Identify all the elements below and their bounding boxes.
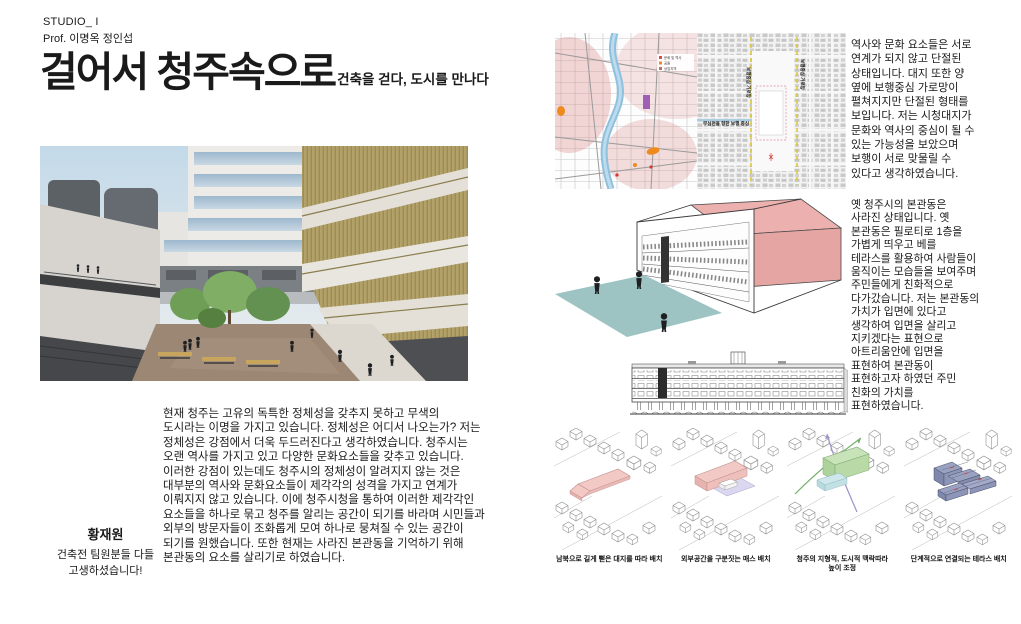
studio-label: STUDIO_ I	[43, 16, 99, 28]
page-title: 걸어서 청주속으로	[40, 50, 335, 95]
corridor-label-left: 보행중심 가로망	[745, 67, 752, 99]
diagram-1-caption: 남북으로 길게 뻗은 대지를 따라 배치	[556, 555, 662, 564]
diagram-3-image	[787, 428, 897, 553]
diagram-4-caption: 단계적으로 연결되는 테라스 배치	[911, 555, 1007, 564]
legend-item-1: 문화 및 역사	[664, 55, 682, 60]
site-analysis-text: 역사와 문화 요소들은 서로 연계가 되지 않고 단절된 상태입니다. 대지 또…	[851, 38, 1014, 181]
diagram-4-image	[904, 428, 1014, 553]
page-subtitle: 건축을 걷다, 도시를 만나다	[337, 68, 489, 95]
author-name: 황재원	[28, 524, 183, 543]
figure-ground-map: 보행중심 가로망 보행중심 가로망 무심천을 향한 보행 중심	[697, 33, 846, 189]
diagram-step-2: 외부공간을 구분짓는 매스 배치	[670, 428, 783, 573]
diagram-2-image	[671, 428, 781, 553]
site-maps: 문화 및 역사 공원 상업지역	[555, 33, 846, 189]
legend-item-3: 상업지역	[664, 66, 676, 71]
presentation-board: STUDIO_ I Prof. 이명옥 정인섭 걸어서 청주속으로 건축을 걷다…	[0, 0, 1021, 624]
map-legend: 문화 및 역사 공원 상업지역	[657, 54, 694, 71]
diagram-step-3: 청주의 지형적, 도시적 맥락따라 높이 조정	[786, 428, 899, 573]
diagram-2-caption: 외부공간을 구분짓는 매스 배치	[681, 555, 771, 564]
courtyard-rendering-image	[40, 146, 468, 381]
corridor-label-right: 보행중심 가로망	[799, 59, 806, 91]
diagram-step-4: 단계적으로 연결되는 테라스 배치	[903, 428, 1016, 573]
title-row: 걸어서 청주속으로 건축을 걷다, 도시를 만나다	[40, 50, 489, 95]
massing-diagram-strip: 남북으로 길게 뻗은 대지를 따라 배치 외부공간을 구분짓는 매스 배치	[553, 428, 1015, 573]
bonkwan-elevation-drawing	[628, 350, 848, 420]
legend-item-2: 공원	[664, 60, 670, 65]
intro-paragraph: 현재 청주는 고유의 독특한 정체성을 갖추지 못하고 무색의 도시라는 이명을…	[163, 407, 508, 565]
bonkwan-text: 옛 청주시의 본관동은 사라진 상태입니다. 옛 본관동은 필로티로 1층을 가…	[851, 199, 1014, 414]
diagram-3-caption: 청주의 지형적, 도시적 맥락따라 높이 조정	[797, 555, 889, 573]
atrium-axon-diagram	[549, 196, 847, 339]
pedestrian-axis-label: 무심천을 향한 보행 중심	[703, 120, 749, 127]
city-context-map: 문화 및 역사 공원 상업지역	[555, 33, 697, 189]
diagram-1-image	[554, 428, 664, 553]
diagram-step-1: 남북으로 길게 뻗은 대지를 따라 배치	[553, 428, 666, 573]
author-box: 황재원 건축전 팀원분들 다들 고생하셨습니다!	[28, 524, 183, 579]
site-marker	[643, 95, 650, 109]
professor-label: Prof. 이명옥 정인섭	[43, 30, 133, 46]
author-note: 건축전 팀원분들 다들 고생하셨습니다!	[28, 548, 183, 579]
